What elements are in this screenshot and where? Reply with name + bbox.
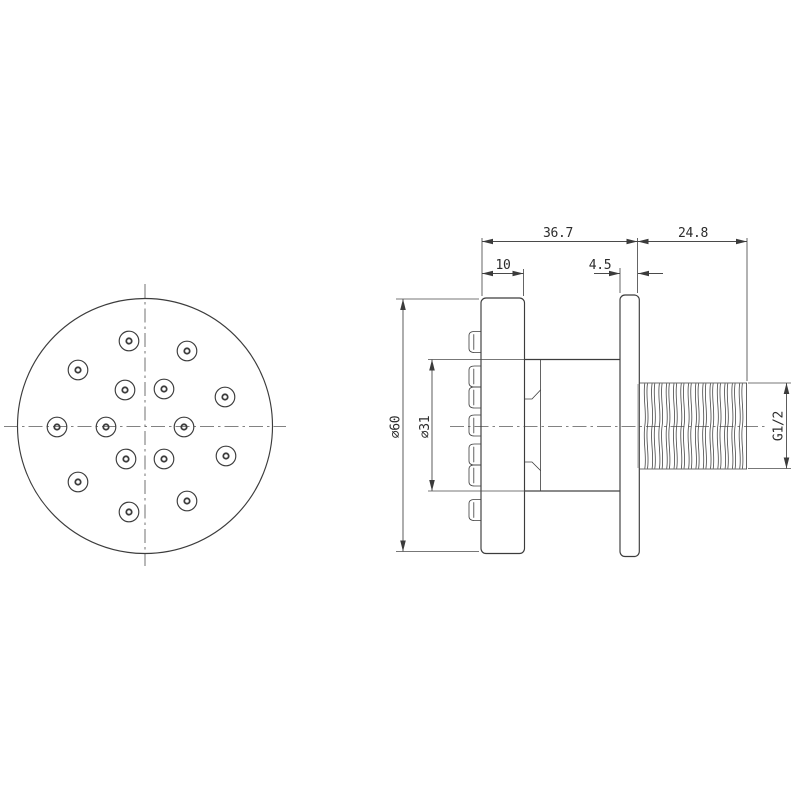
thread-ridge <box>742 384 743 469</box>
nozzle-bump <box>469 387 481 408</box>
thread-ridge <box>739 384 740 469</box>
nozzle-outer-circle <box>119 502 139 522</box>
thread-ridge <box>651 384 652 469</box>
nozzle-inner-circle <box>161 456 166 461</box>
thread-ridge <box>676 384 677 469</box>
nozzle-outer-circle <box>96 417 116 437</box>
technical-drawing: 36.7 24.8 10 4.5 ∅60 ∅31 G1/2 <box>0 0 800 800</box>
nozzle-inner-circle <box>75 367 80 372</box>
thread-ridge <box>688 384 689 469</box>
nozzle-inner-circle <box>126 509 131 514</box>
nozzle-hole <box>174 417 194 437</box>
nozzle-hole <box>177 341 197 361</box>
thread-ridge <box>654 384 655 469</box>
nozzle-outer-circle <box>154 379 174 399</box>
thread-ridge <box>698 384 699 469</box>
thread-ridge <box>661 384 662 469</box>
thread-ridge <box>647 384 648 469</box>
nozzle-hole <box>154 449 174 469</box>
thread-ridge <box>683 384 684 469</box>
dimension-text-flange-thickness: 4.5 <box>589 258 612 273</box>
nozzle-outer-circle <box>177 491 197 511</box>
thread-ridge <box>703 384 704 469</box>
nozzle-hole <box>116 449 136 469</box>
nozzle-inner-circle <box>54 424 59 429</box>
thread-ridge <box>710 384 711 469</box>
nozzle-inner-circle <box>103 424 108 429</box>
thread-ridge <box>659 384 660 469</box>
nozzle-inner-circle <box>184 498 189 503</box>
dimension-text-thread-length: 24.8 <box>678 226 708 241</box>
dimension-text-body-diameter: ∅31 <box>418 416 433 439</box>
nozzle-bump <box>469 444 481 465</box>
nozzle-inner-circle <box>126 338 131 343</box>
nozzle-outer-circle <box>119 331 139 351</box>
thread-ridge <box>691 384 692 469</box>
body-chamfer-top <box>525 390 541 399</box>
thread-ridge <box>727 384 728 469</box>
dimension-text-faceplate-thickness: 10 <box>495 258 510 273</box>
nozzle-bump <box>469 332 481 353</box>
thread-ridge <box>695 384 696 469</box>
faceplate-profile <box>481 298 525 554</box>
nozzle-inner-circle <box>161 386 166 391</box>
nozzle-inner-circle <box>122 387 127 392</box>
nozzle-bump <box>469 465 481 486</box>
nozzle-hole <box>215 387 235 407</box>
thread-ridge <box>705 384 706 469</box>
nozzle-outer-circle <box>154 449 174 469</box>
nozzle-outer-circle <box>68 360 88 380</box>
nozzle-bump <box>469 415 481 436</box>
nozzle-outer-circle <box>216 446 236 466</box>
dimension-text-face-diameter: ∅60 <box>389 416 404 439</box>
thread-ridge <box>720 384 721 469</box>
nozzle-inner-circle <box>123 456 128 461</box>
nozzle-outer-circle <box>116 449 136 469</box>
nozzle-hole <box>68 360 88 380</box>
thread-ridge <box>669 384 670 469</box>
nozzle-hole <box>177 491 197 511</box>
nozzle-outer-circle <box>177 341 197 361</box>
nozzle-outer-circle <box>215 387 235 407</box>
nozzle-inner-circle <box>184 348 189 353</box>
nozzle-outer-circle <box>68 472 88 492</box>
thread-ridge <box>734 384 735 469</box>
nozzle-hole <box>47 417 67 437</box>
thread-ridge <box>713 384 714 469</box>
nozzle-bump <box>469 500 481 521</box>
thread-ridge <box>681 384 682 469</box>
dimension-text-overall-depth: 36.7 <box>543 226 573 241</box>
thread-ridge <box>673 384 674 469</box>
thread-ridge <box>717 384 718 469</box>
side-view <box>450 295 768 557</box>
flange-profile <box>620 295 639 557</box>
nozzle-hole <box>216 446 236 466</box>
nozzle-hole <box>119 502 139 522</box>
thread-section <box>640 383 747 469</box>
nozzle-bump <box>469 366 481 387</box>
nozzle-hole <box>68 472 88 492</box>
nozzle-inner-circle <box>223 453 228 458</box>
front-view <box>4 284 286 566</box>
thread-ridge <box>666 384 667 469</box>
nozzle-outer-circle <box>47 417 67 437</box>
nozzle-hole <box>96 417 116 437</box>
nozzle-hole <box>115 380 135 400</box>
nozzle-inner-circle <box>222 394 227 399</box>
nozzle-inner-circle <box>181 424 186 429</box>
body-chamfer-bottom <box>525 462 541 471</box>
thread-ridge <box>724 384 725 469</box>
nozzle-outer-circle <box>174 417 194 437</box>
dimension-text-thread-spec: G1/2 <box>772 411 787 441</box>
thread-ridge <box>644 384 645 469</box>
nozzle-inner-circle <box>75 479 80 484</box>
nozzle-hole <box>154 379 174 399</box>
dimensions: 36.7 24.8 10 4.5 ∅60 ∅31 G1/2 <box>389 226 792 552</box>
drawing-canvas: 36.7 24.8 10 4.5 ∅60 ∅31 G1/2 <box>0 0 800 800</box>
nozzle-hole <box>119 331 139 351</box>
thread-ridge <box>732 384 733 469</box>
nozzle-outer-circle <box>115 380 135 400</box>
